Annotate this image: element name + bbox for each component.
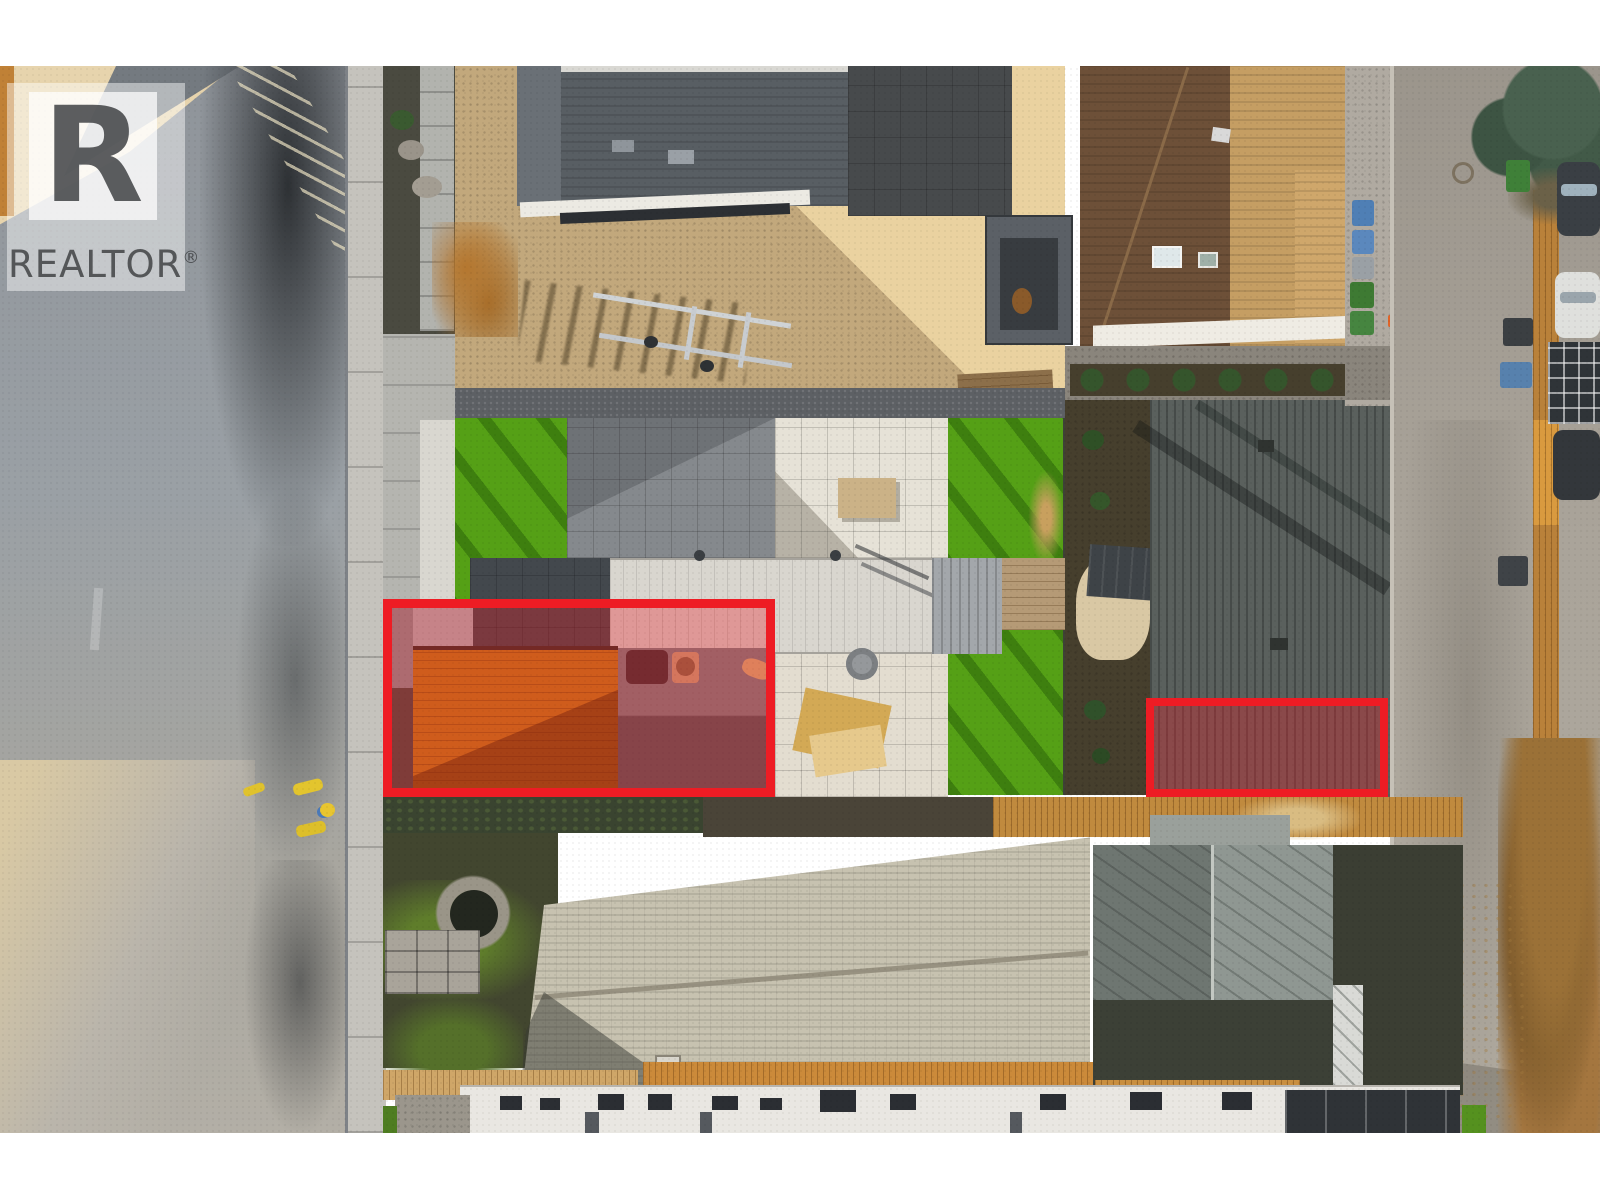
garden-shrub bbox=[390, 110, 414, 130]
bin-green bbox=[1350, 311, 1374, 335]
recycling-bin-blue bbox=[1352, 230, 1374, 254]
garden-bed-row bbox=[1070, 364, 1345, 396]
townhouse-window bbox=[712, 1096, 738, 1110]
mulch-shrub bbox=[1090, 492, 1110, 510]
garden-rock bbox=[412, 176, 442, 198]
grass-tuft-bottom bbox=[383, 1106, 397, 1133]
mulch-shrub bbox=[1082, 430, 1104, 450]
townhouse-window bbox=[598, 1094, 624, 1110]
mulch-shrub bbox=[1092, 748, 1110, 764]
cinder-block-path bbox=[385, 930, 480, 994]
fire-hydrant-top-view bbox=[320, 803, 335, 817]
aerial-photo-stage: R REALTOR® bbox=[0, 0, 1600, 1200]
registered-trademark-symbol: ® bbox=[182, 248, 200, 268]
bottom-right-roof-shaded-facet bbox=[1093, 845, 1213, 1000]
roof-vent bbox=[668, 150, 694, 164]
hedge-band bbox=[383, 797, 703, 833]
trailer-wheel bbox=[700, 360, 714, 372]
rear-shed-interior bbox=[1000, 238, 1058, 330]
bin-green bbox=[1506, 160, 1530, 192]
townhouse-door bbox=[700, 1112, 712, 1133]
letterbox-top bbox=[0, 0, 1600, 66]
front-door-path bbox=[420, 420, 455, 616]
parked-car-dark bbox=[1557, 162, 1600, 236]
townhouse-door bbox=[585, 1112, 599, 1133]
rear-paver-pad bbox=[848, 66, 1012, 216]
townhouse-window bbox=[890, 1094, 916, 1110]
townhouse-window bbox=[540, 1098, 560, 1110]
townhouse-window bbox=[1040, 1094, 1066, 1110]
bin-black bbox=[1503, 318, 1533, 346]
soil-band bbox=[703, 797, 993, 837]
roof-chimney-vent bbox=[1270, 638, 1288, 650]
townhouse-window bbox=[1130, 1092, 1162, 1110]
fire-bowl bbox=[846, 648, 878, 680]
realtor-logo-letter: R bbox=[42, 90, 144, 222]
small-shed-roof bbox=[1150, 815, 1290, 849]
grass-strip-bottom-right bbox=[1462, 1105, 1486, 1133]
highlight-neighbor-roof-section bbox=[1146, 698, 1388, 797]
realtor-wordmark: REALTOR® bbox=[8, 243, 188, 287]
skylight bbox=[1198, 252, 1218, 268]
car-windshield bbox=[1560, 292, 1596, 303]
mulch-shrub bbox=[1084, 700, 1106, 720]
shed-item bbox=[1012, 288, 1032, 314]
roof-chimney-vent bbox=[1258, 440, 1274, 452]
rear-pergola bbox=[932, 558, 1002, 654]
recycling-bin-blue bbox=[1352, 200, 1374, 226]
dark-flat-roof-bottom-right bbox=[1285, 1090, 1460, 1133]
utility-trailer-rack bbox=[1548, 342, 1600, 424]
townhouse-door bbox=[1010, 1112, 1022, 1133]
townhouse-window bbox=[1222, 1092, 1252, 1110]
roof-vent bbox=[1211, 127, 1231, 143]
patio-planter bbox=[838, 478, 896, 518]
rear-building-roof bbox=[517, 66, 850, 206]
tire-stain-bottom bbox=[245, 860, 355, 1133]
bottom-right-roof-ridge bbox=[1211, 845, 1214, 1000]
rear-building-annex bbox=[517, 66, 561, 206]
realtor-brand-text: REALTOR bbox=[8, 243, 182, 286]
rear-building-ridge bbox=[517, 66, 850, 72]
townhouse-window bbox=[760, 1098, 782, 1110]
dry-orange-shrub bbox=[432, 222, 518, 337]
trailer-wheel bbox=[644, 336, 658, 348]
wood-walkway bbox=[1002, 558, 1065, 630]
realtor-logo-r-block-icon: R bbox=[29, 92, 157, 220]
townhouse-window bbox=[648, 1094, 672, 1110]
skylight bbox=[1152, 246, 1182, 268]
parked-car-white bbox=[1555, 272, 1600, 338]
bin-green bbox=[1350, 282, 1374, 308]
bin-dark bbox=[1498, 556, 1528, 586]
car-windshield bbox=[1561, 184, 1597, 196]
townhouse-window bbox=[820, 1090, 856, 1112]
townhouse-window bbox=[500, 1096, 522, 1110]
highlight-front-deck-patio bbox=[383, 599, 775, 797]
letterbox-bottom bbox=[0, 1133, 1600, 1200]
sidewalk bbox=[345, 66, 386, 1133]
bin-blue bbox=[1500, 362, 1532, 388]
white-gate bbox=[1333, 985, 1363, 1085]
bin-gray bbox=[1352, 257, 1374, 279]
garden-rock bbox=[398, 140, 424, 160]
roof-vent bbox=[612, 140, 634, 152]
parked-car-dark bbox=[1553, 430, 1600, 500]
roof-vent-cap bbox=[830, 550, 841, 561]
leaf-litter bbox=[1028, 470, 1064, 565]
left-street-sun-wedge-bottom bbox=[0, 760, 255, 1133]
gravel-border-strip bbox=[440, 388, 1065, 418]
roof-vent-cap bbox=[694, 550, 705, 561]
tire-stain-mid bbox=[235, 480, 355, 880]
gravel-patch-bottom bbox=[395, 1095, 470, 1133]
